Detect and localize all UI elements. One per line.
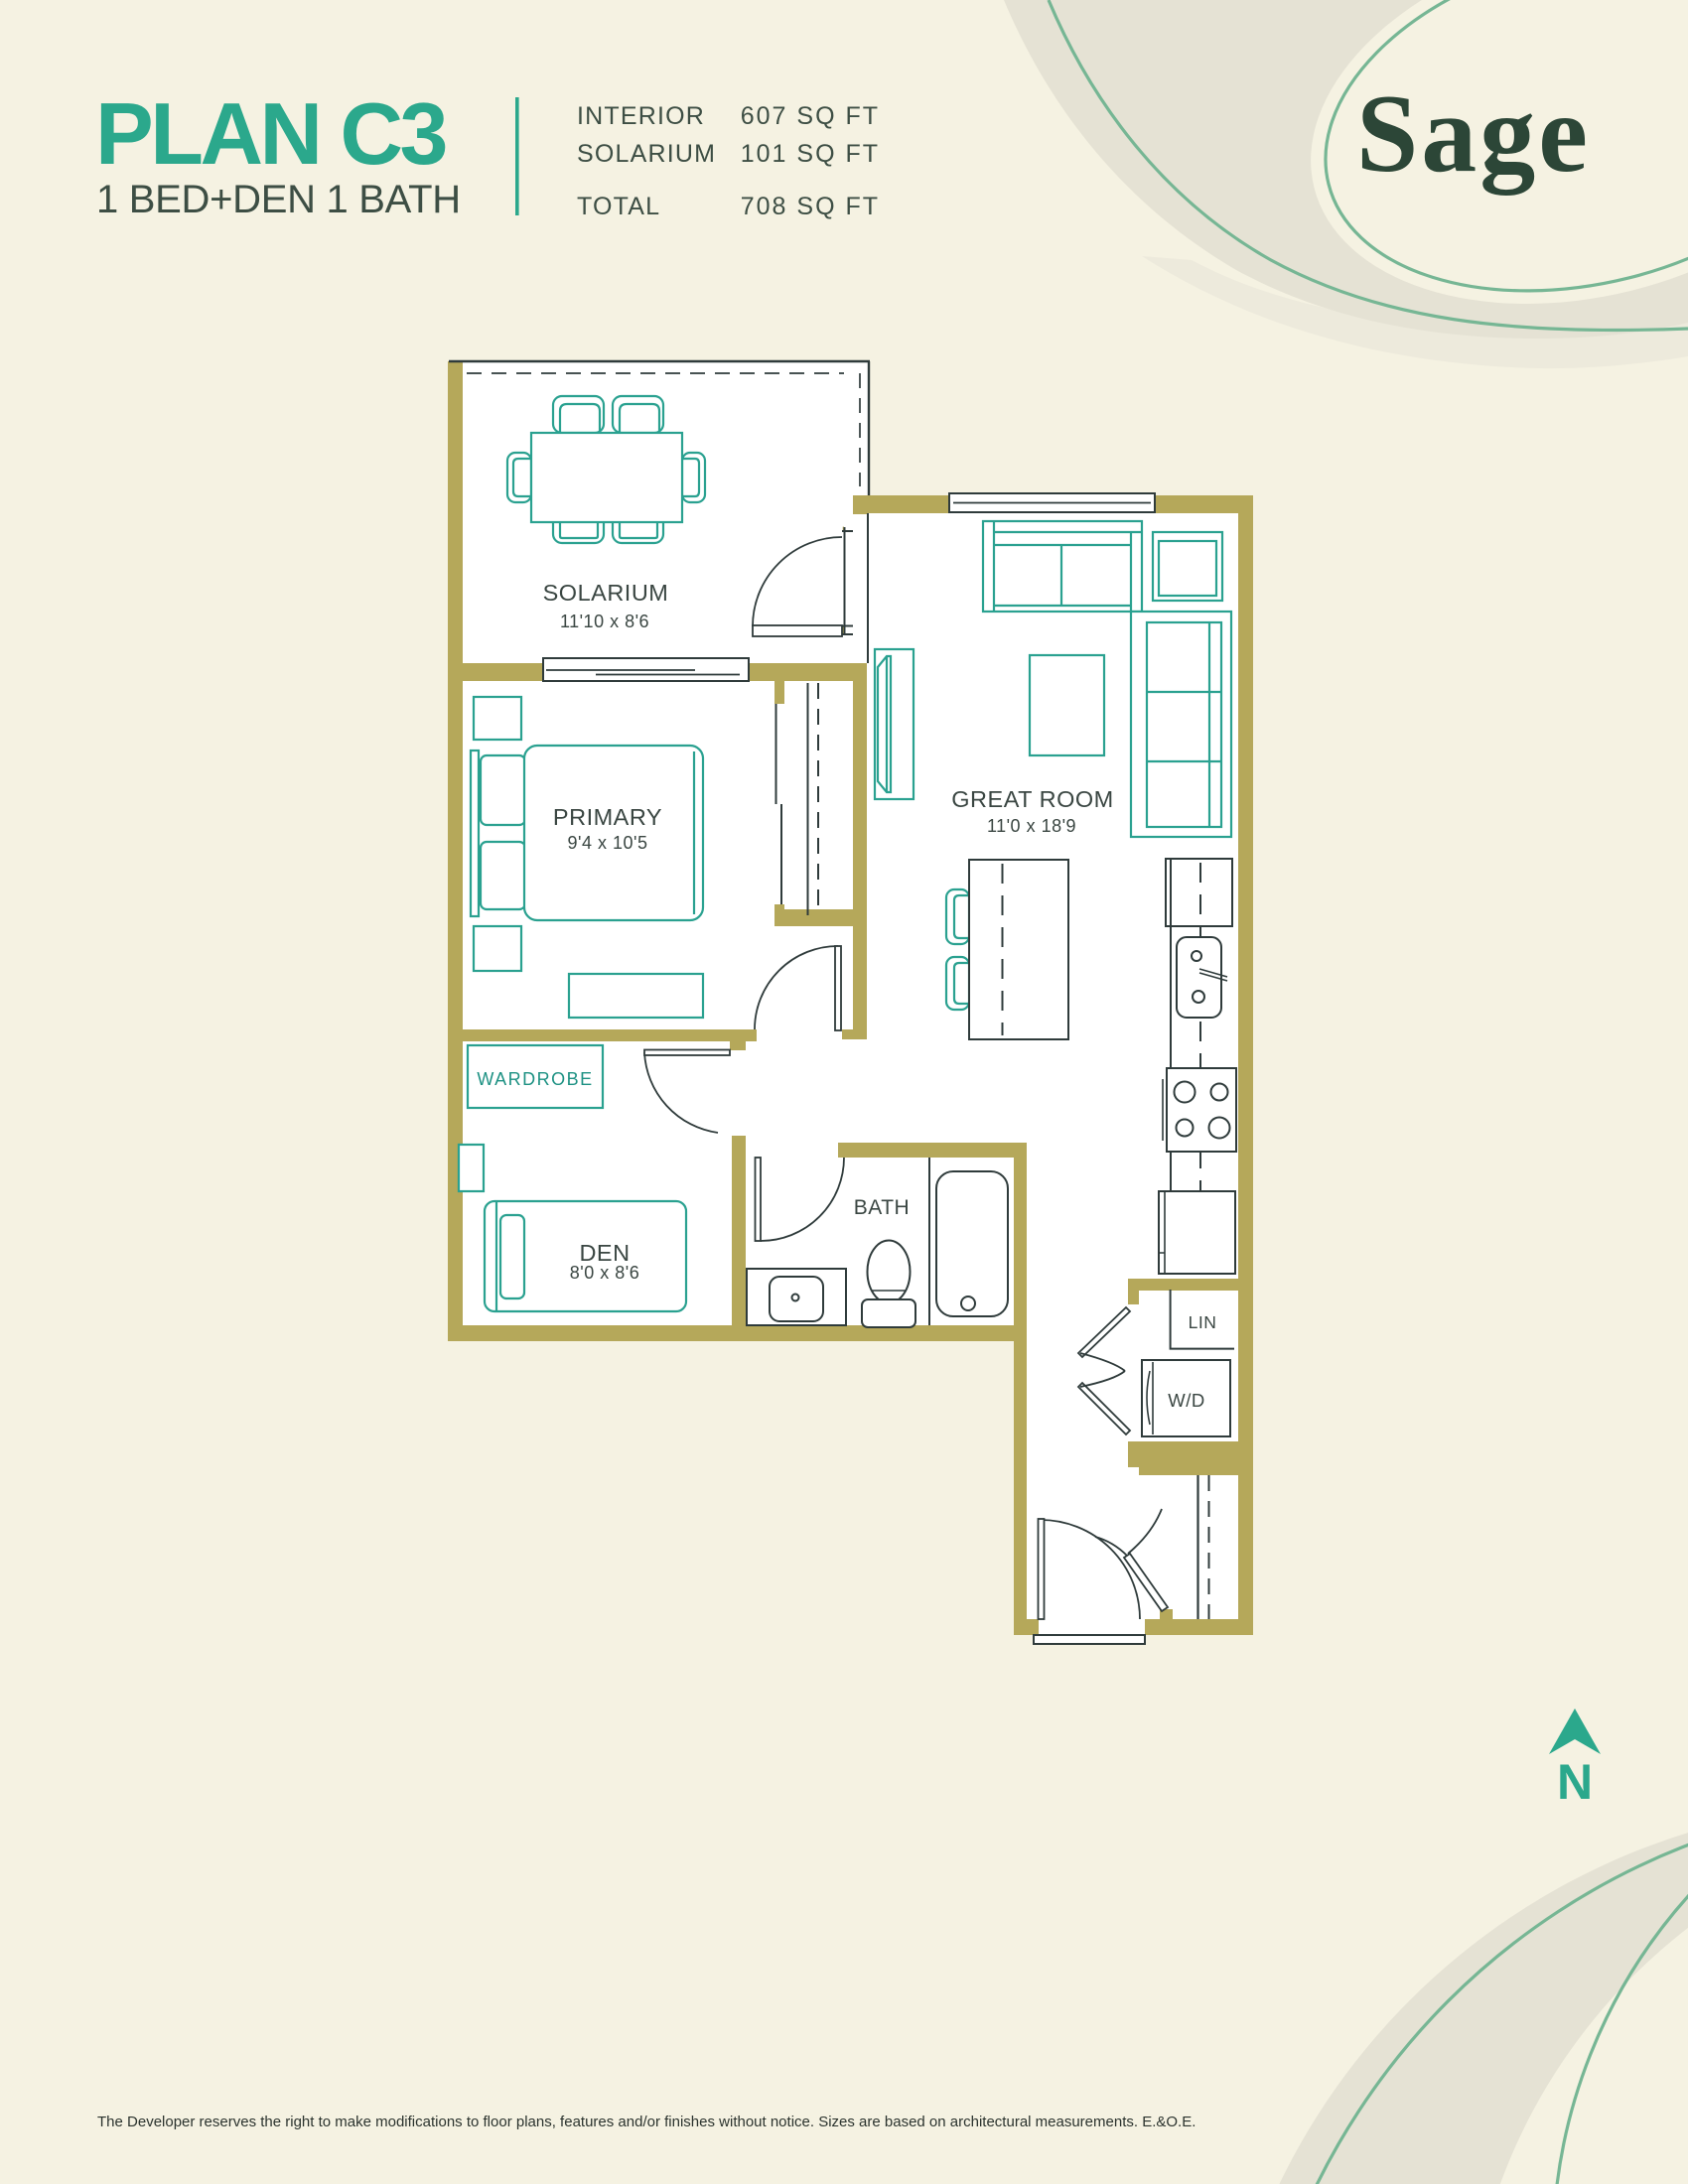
svg-text:607 SQ FT: 607 SQ FT <box>741 102 880 130</box>
svg-text:W/D: W/D <box>1168 1390 1204 1411</box>
svg-text:GREAT ROOM: GREAT ROOM <box>951 786 1113 812</box>
svg-text:BATH: BATH <box>854 1196 910 1219</box>
svg-text:INTERIOR: INTERIOR <box>577 102 705 130</box>
svg-text:PRIMARY: PRIMARY <box>553 804 662 830</box>
svg-text:1 BED+DEN 1 BATH: 1 BED+DEN 1 BATH <box>96 178 461 221</box>
svg-text:11'10 x 8'6: 11'10 x 8'6 <box>560 612 649 631</box>
svg-text:PLAN C3: PLAN C3 <box>95 84 446 183</box>
svg-text:708 SQ FT: 708 SQ FT <box>741 193 880 220</box>
svg-text:N: N <box>1557 1754 1593 1810</box>
svg-text:WARDROBE: WARDROBE <box>477 1069 593 1089</box>
svg-text:SOLARIUM: SOLARIUM <box>543 580 669 606</box>
svg-text:TOTAL: TOTAL <box>577 193 660 220</box>
svg-text:8'0 x 8'6: 8'0 x 8'6 <box>570 1263 639 1283</box>
svg-text:Sage: Sage <box>1356 72 1591 196</box>
svg-text:The Developer reserves the rig: The Developer reserves the right to make… <box>97 2114 1196 2130</box>
svg-text:LIN: LIN <box>1189 1312 1217 1332</box>
svg-text:9'4 x 10'5: 9'4 x 10'5 <box>568 833 648 853</box>
svg-text:101 SQ FT: 101 SQ FT <box>741 140 880 168</box>
svg-text:11'0 x 18'9: 11'0 x 18'9 <box>987 816 1076 836</box>
svg-text:SOLARIUM: SOLARIUM <box>577 140 716 168</box>
